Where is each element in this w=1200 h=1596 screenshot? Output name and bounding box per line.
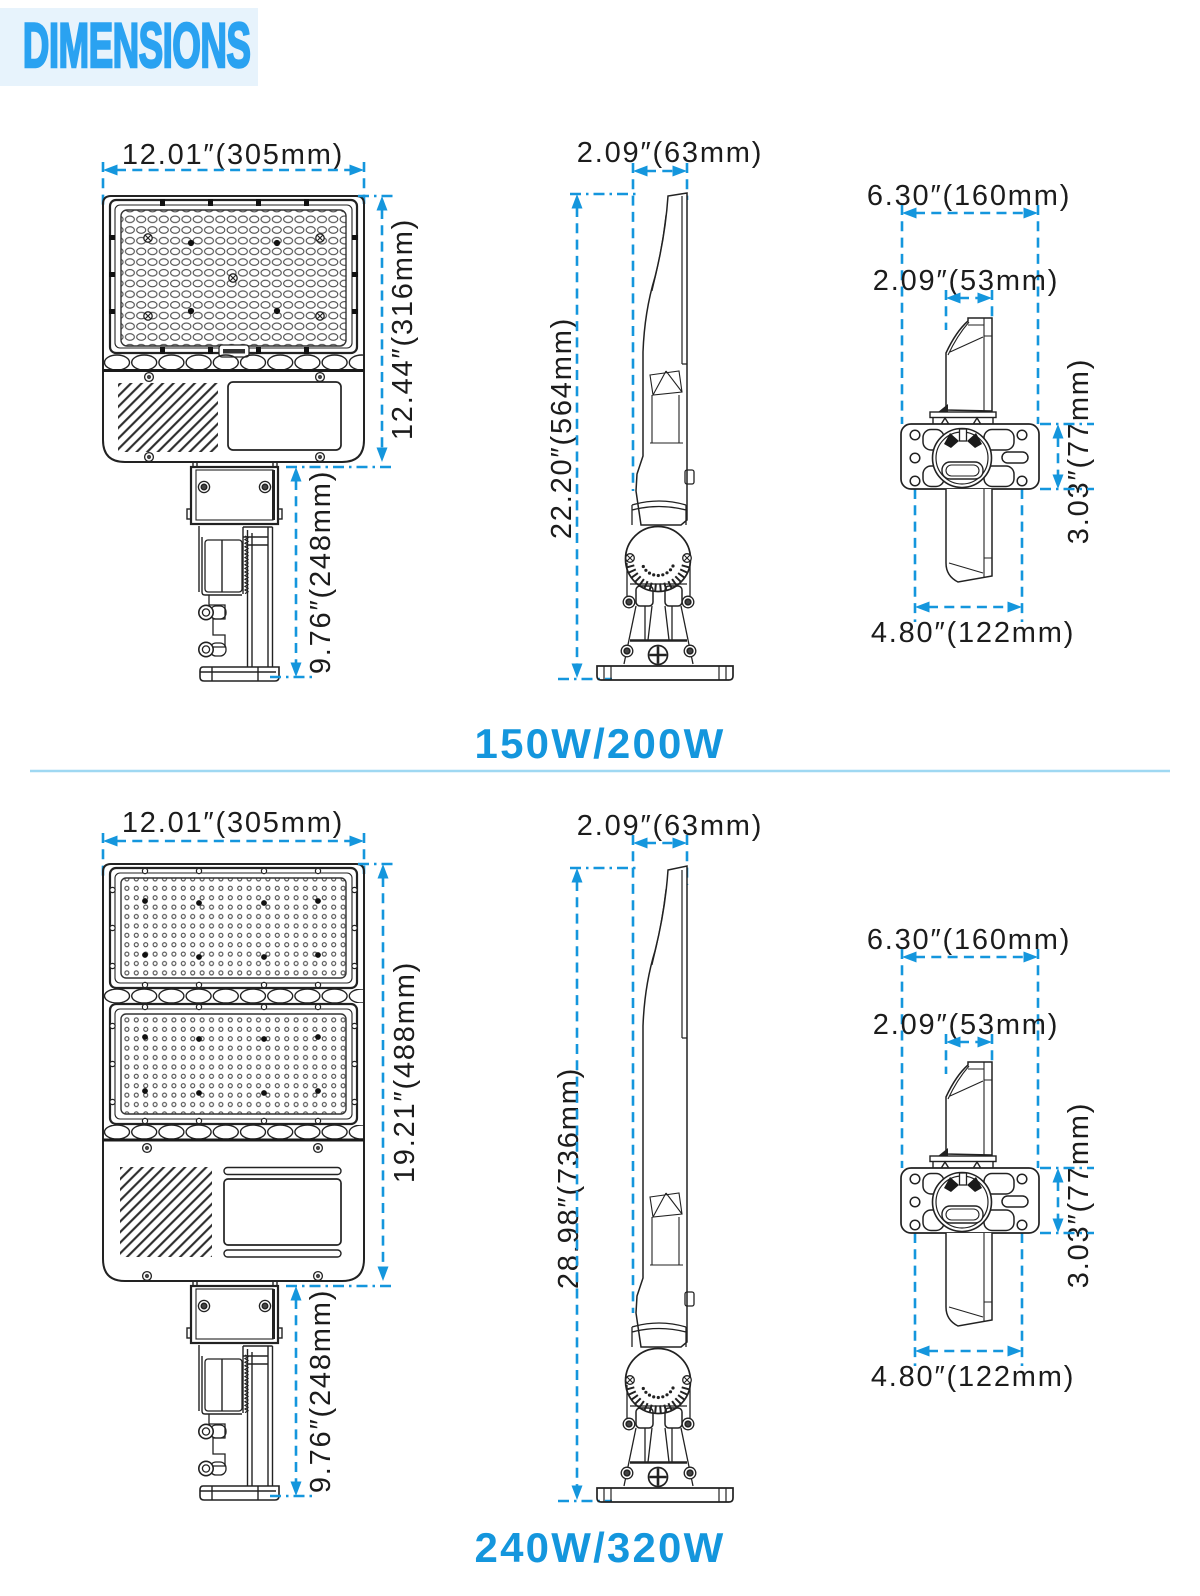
svg-text:2.09″(63mm): 2.09″(63mm) — [577, 810, 763, 842]
svg-text:150W/200W: 150W/200W — [475, 720, 726, 767]
svg-text:6.30″(160mm): 6.30″(160mm) — [867, 180, 1071, 212]
svg-text:28.98″(736mm): 28.98″(736mm) — [553, 1067, 585, 1289]
svg-text:19.21″(488mm): 19.21″(488mm) — [389, 961, 421, 1183]
svg-text:12.44″(316mm): 12.44″(316mm) — [387, 218, 419, 440]
svg-text:3.03″(77mm): 3.03″(77mm) — [1063, 358, 1095, 544]
svg-text:2.09″(63mm): 2.09″(63mm) — [577, 137, 763, 169]
svg-text:12.01″(305mm): 12.01″(305mm) — [122, 139, 344, 171]
svg-text:22.20″(564mm): 22.20″(564mm) — [546, 317, 578, 539]
svg-text:4.80″(122mm): 4.80″(122mm) — [871, 617, 1075, 649]
svg-text:12.01″(305mm): 12.01″(305mm) — [122, 807, 344, 839]
svg-text:DIMENSIONS: DIMENSIONS — [23, 10, 251, 81]
svg-text:9.76″(248mm): 9.76″(248mm) — [305, 470, 337, 674]
svg-text:240W/320W: 240W/320W — [475, 1524, 726, 1571]
svg-text:2.09″(53mm): 2.09″(53mm) — [873, 265, 1059, 297]
